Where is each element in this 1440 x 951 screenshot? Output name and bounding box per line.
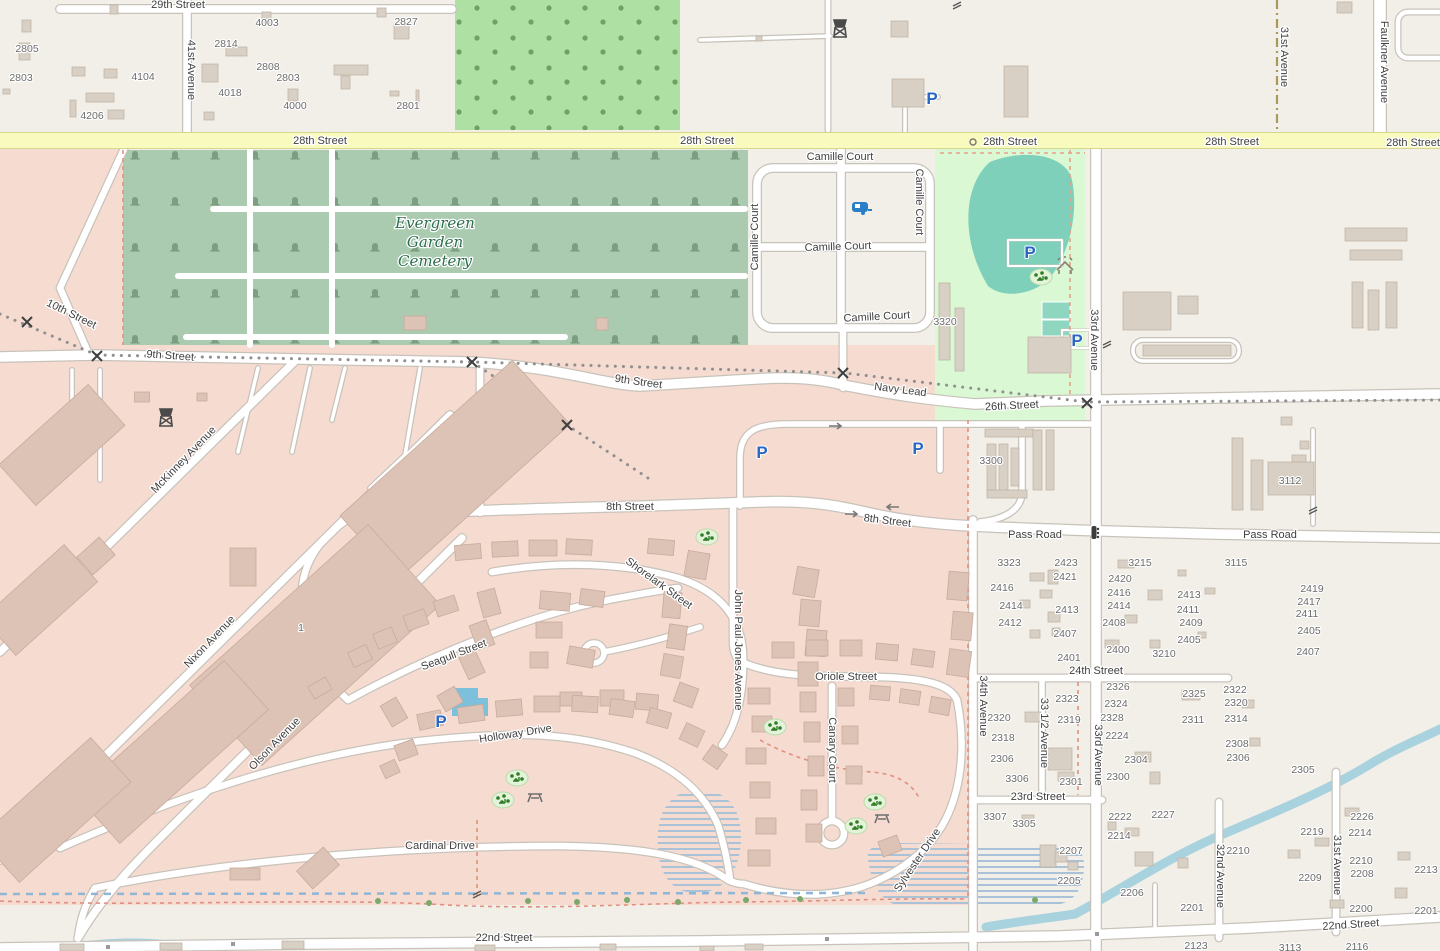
house-number: 2208 xyxy=(1350,868,1374,880)
playground-icon xyxy=(764,719,786,735)
building xyxy=(454,543,481,560)
building xyxy=(800,692,816,712)
building xyxy=(1386,282,1397,328)
house-number: 2400 xyxy=(1106,644,1130,656)
street-label: Pass Road xyxy=(1008,529,1062,541)
building xyxy=(700,946,714,951)
tree-icon xyxy=(426,900,432,906)
house-number: 2324 xyxy=(1104,698,1128,710)
house-number: 3115 xyxy=(1225,557,1248,569)
traffic-signal-icon xyxy=(1092,526,1100,539)
house-number: 2801 xyxy=(396,100,420,112)
building xyxy=(1030,573,1044,581)
building xyxy=(987,444,996,490)
building xyxy=(579,588,605,607)
park-area xyxy=(935,148,1085,420)
parking-icon: P xyxy=(912,439,923,458)
cemetery-label: Garden xyxy=(407,233,463,251)
house-number: 4003 xyxy=(255,17,279,29)
house-number: 2320 xyxy=(987,712,1011,724)
cemetery-label: Cemetery xyxy=(398,252,473,270)
house-number: 2407 xyxy=(1296,646,1320,658)
house-number: 2405 xyxy=(1177,634,1201,646)
house-number: 2301 xyxy=(1059,776,1083,788)
house-number: 3300 xyxy=(979,455,1003,467)
house-number: 2417 xyxy=(1297,596,1321,608)
building xyxy=(596,318,608,330)
building xyxy=(1011,448,1019,486)
building xyxy=(846,766,862,784)
house-number: 2805 xyxy=(15,43,39,55)
house-number: 2306 xyxy=(1226,752,1250,764)
house-number: 2207 xyxy=(1059,845,1083,857)
building xyxy=(804,722,820,742)
building xyxy=(806,640,828,656)
building xyxy=(495,699,522,717)
street-label: 24th Street xyxy=(1069,665,1123,677)
building xyxy=(748,850,770,866)
building xyxy=(492,541,519,557)
building xyxy=(660,653,684,678)
house-number: 2421 xyxy=(1053,571,1077,583)
building xyxy=(86,93,114,102)
building xyxy=(806,824,822,842)
building xyxy=(1315,838,1329,846)
house-number: 3113 xyxy=(1279,942,1302,951)
parking-icon: P xyxy=(756,443,767,462)
house-number: 2227 xyxy=(1151,809,1175,821)
building xyxy=(230,548,256,586)
building xyxy=(891,21,908,37)
tree-icon xyxy=(1032,897,1038,903)
house-number: 2306 xyxy=(990,753,1014,765)
house-number: 2416 xyxy=(1107,587,1131,599)
building xyxy=(1292,455,1306,462)
building xyxy=(1352,282,1363,328)
building xyxy=(808,756,824,776)
house-number: 4000 xyxy=(283,100,307,112)
building xyxy=(745,944,763,950)
house-number: 2411 xyxy=(1177,604,1200,616)
street-label: Camille Court xyxy=(807,151,874,163)
building xyxy=(1135,852,1153,866)
sports-pitch xyxy=(1042,302,1070,319)
house-number: 2325 xyxy=(1182,688,1206,700)
tree-icon xyxy=(574,899,580,905)
building xyxy=(1046,430,1054,490)
street-label: 31st Avenue xyxy=(1331,835,1343,895)
playground-icon xyxy=(506,770,528,786)
street-label: 31st Avenue xyxy=(1278,27,1290,87)
house-number: 2200 xyxy=(1349,903,1373,915)
building xyxy=(772,642,794,658)
building xyxy=(869,685,890,701)
house-number: 2222 xyxy=(1108,811,1132,823)
building xyxy=(1345,228,1407,241)
street-label: 28th Street xyxy=(680,135,734,147)
house-number: 2224 xyxy=(1105,730,1129,742)
building xyxy=(566,539,593,555)
house-number: 2411 xyxy=(1296,608,1319,620)
building xyxy=(799,599,821,627)
house-number: 2322 xyxy=(1223,684,1247,696)
building xyxy=(609,698,635,717)
building xyxy=(911,649,935,668)
street-label: 33rd Avenue xyxy=(1092,724,1104,786)
building xyxy=(1251,460,1263,510)
building xyxy=(635,693,658,711)
building xyxy=(1040,590,1052,598)
house-number: 2219 xyxy=(1300,826,1324,838)
house-number: 2210 xyxy=(1349,855,1373,867)
street-label: 32nd Avenue xyxy=(1214,844,1226,908)
building xyxy=(684,550,710,579)
building xyxy=(404,316,426,330)
building xyxy=(985,429,1033,437)
house-number: 2803 xyxy=(276,72,300,84)
building xyxy=(572,695,599,712)
house-number: 2423 xyxy=(1054,557,1078,569)
building xyxy=(987,490,1027,498)
house-number: 2304 xyxy=(1124,754,1148,766)
tree-icon xyxy=(375,898,381,904)
road-node xyxy=(231,942,235,946)
street-label: 28th Street xyxy=(983,136,1037,148)
house-number: 2320 xyxy=(1224,697,1248,709)
house-number: 2214 xyxy=(1107,830,1131,842)
house-number: 2201 xyxy=(1414,905,1438,917)
house-number: 2116 xyxy=(1346,941,1369,951)
house-number: 2328 xyxy=(1100,712,1124,724)
street-label: 28th Street xyxy=(1386,137,1440,149)
building xyxy=(1033,430,1042,490)
building xyxy=(999,444,1008,490)
cemetery-label: Evergreen xyxy=(394,214,475,232)
house-number: 2405 xyxy=(1297,625,1321,637)
house-number: 3307 xyxy=(983,811,1007,823)
house-number: 3112 xyxy=(1279,475,1302,487)
building xyxy=(1337,2,1352,13)
building xyxy=(748,688,770,704)
street-label: John Paul Jones Avenue xyxy=(732,590,744,711)
house-number: 2803 xyxy=(9,72,33,84)
house-number: 2412 xyxy=(998,617,1022,629)
house-number: 2420 xyxy=(1108,573,1132,585)
building xyxy=(1368,290,1379,330)
building xyxy=(22,20,31,32)
building xyxy=(390,91,399,96)
building xyxy=(60,944,84,951)
building xyxy=(457,704,485,723)
house-number: 2209 xyxy=(1298,872,1322,884)
building xyxy=(840,640,862,656)
building xyxy=(1330,900,1344,908)
house-number: 2318 xyxy=(991,732,1015,744)
building xyxy=(1288,850,1300,858)
street-label: Oriole Street xyxy=(815,671,877,683)
street-label: 41st Avenue xyxy=(185,40,197,100)
building xyxy=(1178,858,1188,868)
building xyxy=(746,748,766,764)
building xyxy=(1205,588,1215,594)
house-number: 2416 xyxy=(990,582,1014,594)
house-number: 2314 xyxy=(1224,713,1248,725)
building xyxy=(1395,888,1407,898)
house-number: 2123 xyxy=(1184,940,1208,951)
house-number: 2319 xyxy=(1057,714,1081,726)
building xyxy=(1150,640,1160,648)
playground-icon xyxy=(845,818,867,834)
building xyxy=(1232,438,1243,510)
building xyxy=(947,571,969,601)
tree-icon xyxy=(624,897,630,903)
street-label: 28th Street xyxy=(1205,136,1259,148)
building xyxy=(600,944,616,950)
playground-icon xyxy=(864,794,886,810)
building xyxy=(1150,772,1160,784)
building xyxy=(1281,417,1292,425)
house-number: 2414 xyxy=(1107,600,1131,612)
building xyxy=(756,818,776,834)
house-number: 2213 xyxy=(1414,864,1438,876)
house-number: 3320 xyxy=(933,316,957,328)
building xyxy=(110,5,118,14)
house-number: 2226 xyxy=(1350,811,1374,823)
building xyxy=(951,611,973,641)
building xyxy=(793,566,820,597)
building xyxy=(475,945,495,951)
house-number: 4018 xyxy=(218,87,242,99)
building xyxy=(892,79,924,107)
building xyxy=(1398,852,1410,860)
street-label: Cardinal Drive xyxy=(405,840,475,852)
street-label: 28th Street xyxy=(293,135,347,147)
house-number: 2413 xyxy=(1177,589,1201,601)
building xyxy=(334,65,368,75)
building xyxy=(204,112,214,120)
building xyxy=(929,696,951,715)
street-label: 22nd Street xyxy=(476,932,533,944)
building xyxy=(1300,441,1309,449)
building xyxy=(202,64,218,82)
house-number: 2401 xyxy=(1057,652,1081,664)
building xyxy=(230,868,260,880)
house-number: 2419 xyxy=(1300,583,1324,595)
street-label: 29th Street xyxy=(151,0,205,11)
orchard-area xyxy=(455,0,680,130)
parking-icon: P xyxy=(1024,243,1035,262)
house-number: 2326 xyxy=(1106,681,1130,693)
street-label: 23rd Street xyxy=(1011,791,1065,803)
building xyxy=(750,782,770,798)
building xyxy=(341,76,350,89)
house-number: 4104 xyxy=(131,71,155,83)
building xyxy=(1030,630,1040,638)
building xyxy=(647,538,674,555)
house-number: 2300 xyxy=(1106,771,1130,783)
parking-icon: P xyxy=(1071,331,1082,350)
building xyxy=(946,649,971,678)
building xyxy=(160,943,182,950)
tree-icon xyxy=(743,897,749,903)
building xyxy=(1148,590,1162,600)
building xyxy=(1048,748,1072,770)
house-number: 2214 xyxy=(1348,827,1372,839)
house-number: 3323 xyxy=(997,557,1021,569)
building xyxy=(534,696,560,712)
building xyxy=(1040,845,1056,867)
building xyxy=(1178,570,1186,576)
street-label: 8th Street xyxy=(606,501,654,513)
building xyxy=(1108,822,1116,830)
house-number: 2205 xyxy=(1057,875,1081,887)
tree-icon xyxy=(525,898,531,904)
playground-icon xyxy=(492,792,514,808)
building xyxy=(1178,296,1198,314)
building xyxy=(282,941,304,949)
house-number: 2413 xyxy=(1055,604,1079,616)
road-node xyxy=(825,937,829,941)
house-number: 2407 xyxy=(1053,628,1077,640)
street-label: Camille Court xyxy=(749,204,761,271)
building xyxy=(838,688,854,706)
house-number: 2827 xyxy=(394,16,418,28)
house-number: 2308 xyxy=(1225,738,1249,750)
tree-icon xyxy=(675,899,681,905)
playground-icon xyxy=(696,529,718,545)
house-number: 2206 xyxy=(1120,887,1144,899)
building xyxy=(529,540,557,556)
building xyxy=(756,36,762,41)
building xyxy=(104,69,117,78)
house-number: 1 xyxy=(298,622,304,634)
building xyxy=(1250,738,1260,746)
street-label: Camille Court xyxy=(913,169,925,236)
house-number: 3306 xyxy=(1005,773,1029,785)
building xyxy=(536,622,562,638)
building xyxy=(842,726,858,744)
road-node xyxy=(1095,932,1099,936)
house-number: 3215 xyxy=(1128,557,1152,569)
house-number: 2409 xyxy=(1179,617,1203,629)
building xyxy=(1123,292,1171,330)
house-number: 3305 xyxy=(1012,818,1036,830)
building xyxy=(72,67,85,76)
house-number: 2814 xyxy=(214,38,238,50)
building xyxy=(539,591,570,612)
street-label: 34th Avenue xyxy=(977,676,989,737)
street-label: Camille Court xyxy=(804,240,871,254)
building xyxy=(899,689,921,706)
building xyxy=(377,8,386,17)
building xyxy=(3,89,10,94)
building xyxy=(70,100,76,117)
house-number: 2305 xyxy=(1291,764,1315,776)
street-label: 33rd Avenue xyxy=(1088,309,1100,371)
building xyxy=(108,110,124,119)
osm-map-canvas[interactable]: PPPPPP 29th Street41st Avenue28th Street… xyxy=(0,0,1440,951)
house-number: 4206 xyxy=(80,110,104,122)
building xyxy=(1125,615,1137,623)
road-node xyxy=(106,945,110,949)
building xyxy=(1143,345,1231,356)
building xyxy=(801,790,817,810)
sports-pitch xyxy=(1042,320,1070,336)
playground-icon xyxy=(1030,269,1052,285)
house-number: 3210 xyxy=(1152,648,1176,660)
house-number: 2311 xyxy=(1182,714,1205,726)
parking-icon: P xyxy=(926,89,937,108)
parking-icon: P xyxy=(435,712,446,731)
building xyxy=(1028,337,1071,373)
building xyxy=(1350,250,1402,260)
building xyxy=(1004,66,1028,117)
tree-icon xyxy=(797,896,803,902)
building xyxy=(1068,862,1078,870)
street-label: Pass Road xyxy=(1243,529,1297,541)
street-label: Canary Court xyxy=(826,717,838,782)
house-number: 2201 xyxy=(1180,902,1204,914)
building xyxy=(666,624,687,650)
house-number: 2414 xyxy=(999,600,1023,612)
house-number: 2323 xyxy=(1055,693,1079,705)
house-number: 2408 xyxy=(1102,617,1126,629)
building xyxy=(197,393,207,401)
house-number: 2210 xyxy=(1226,845,1250,857)
building xyxy=(135,392,150,402)
street-label: Faulkner Avenue xyxy=(1378,21,1390,103)
building xyxy=(530,652,548,668)
street-label: 33 1/2 Avenue xyxy=(1038,698,1050,768)
building xyxy=(875,643,898,661)
